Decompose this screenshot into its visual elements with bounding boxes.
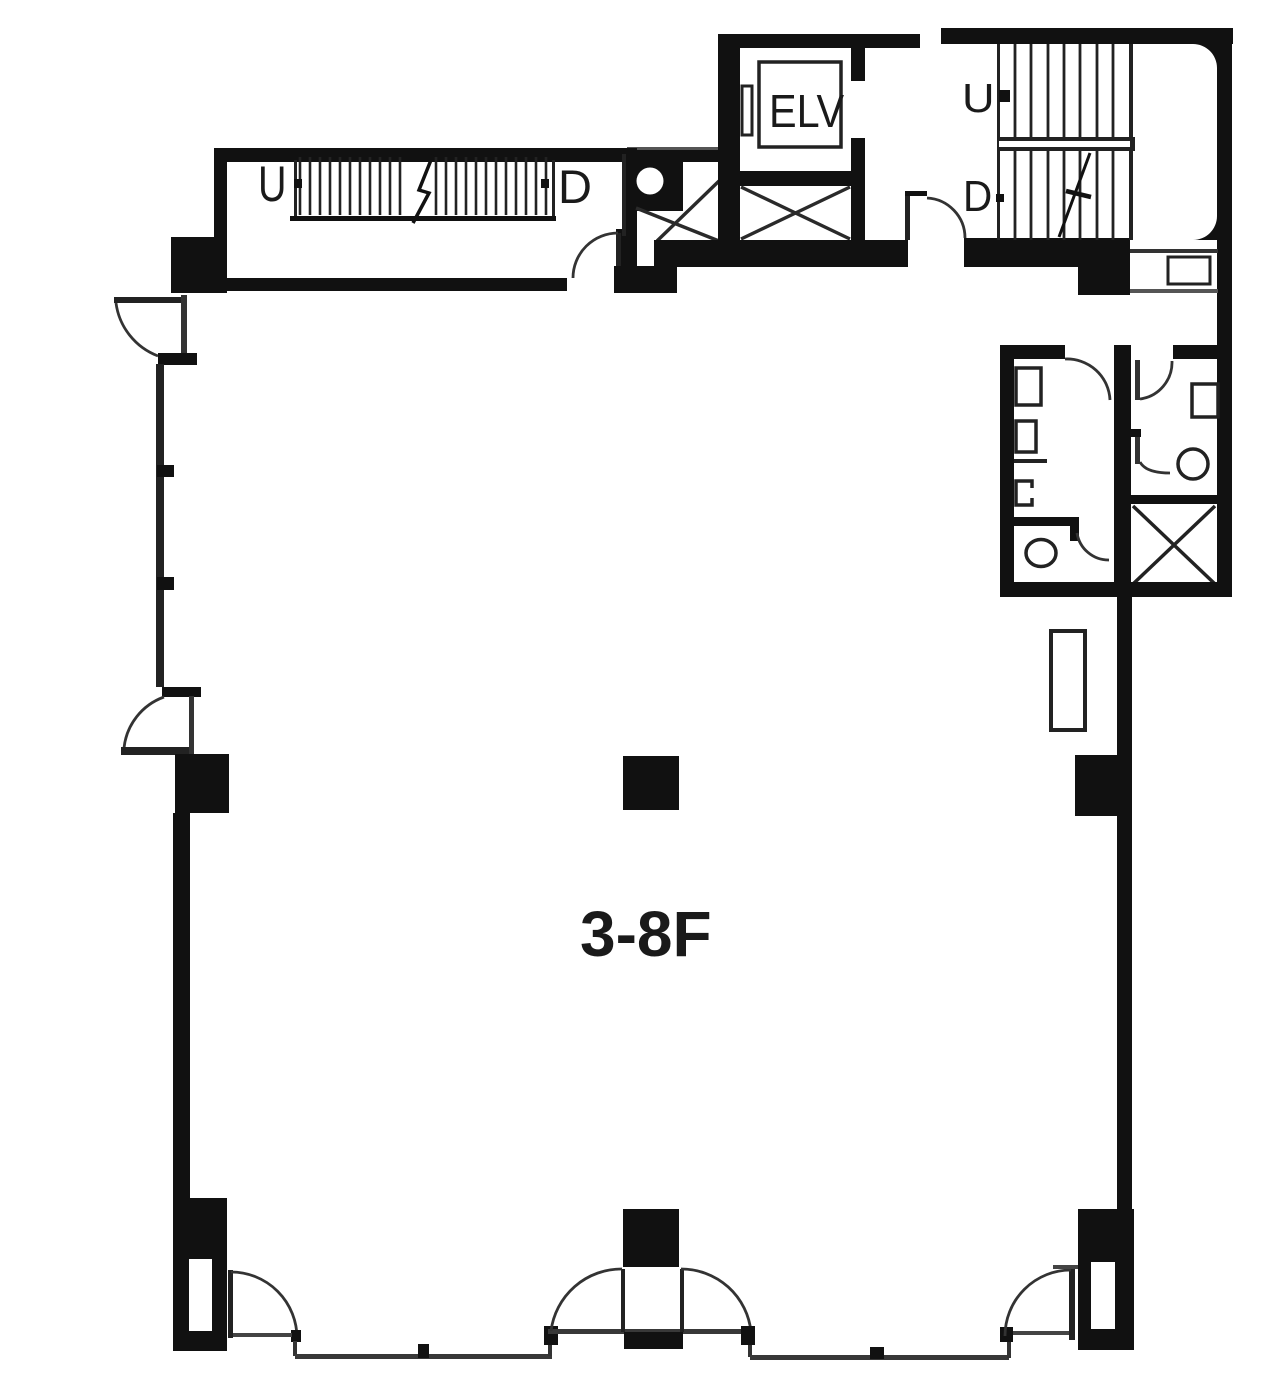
svg-text:U: U [962,76,995,122]
svg-text:D: D [963,171,992,220]
svg-text:3-8F: 3-8F [580,898,712,970]
svg-text:D: D [558,160,592,213]
svg-text:U: U [258,156,287,213]
svg-text:ELV: ELV [769,86,844,138]
